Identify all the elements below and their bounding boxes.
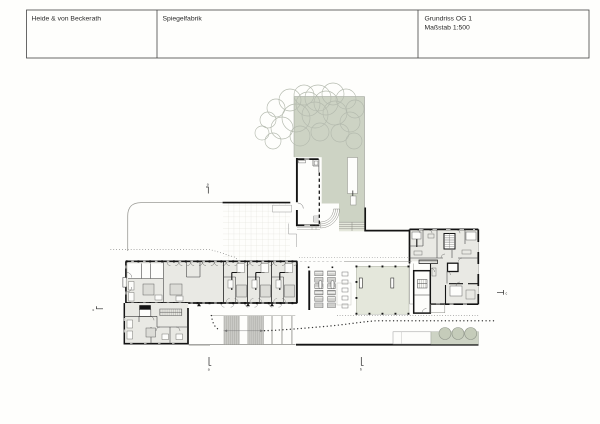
svg-text:Maßstab 1:500: Maßstab 1:500: [425, 24, 471, 31]
svg-text:Grundriss OG 1: Grundriss OG 1: [425, 15, 473, 22]
svg-text:c: c: [506, 291, 508, 295]
svg-text:b: b: [360, 368, 362, 372]
svg-text:Heide & von Beckerath: Heide & von Beckerath: [32, 15, 102, 22]
svg-text:a: a: [207, 183, 209, 187]
svg-text:c: c: [93, 308, 95, 312]
svg-text:a: a: [208, 368, 210, 372]
svg-text:Spiegelfabrik: Spiegelfabrik: [163, 15, 203, 22]
